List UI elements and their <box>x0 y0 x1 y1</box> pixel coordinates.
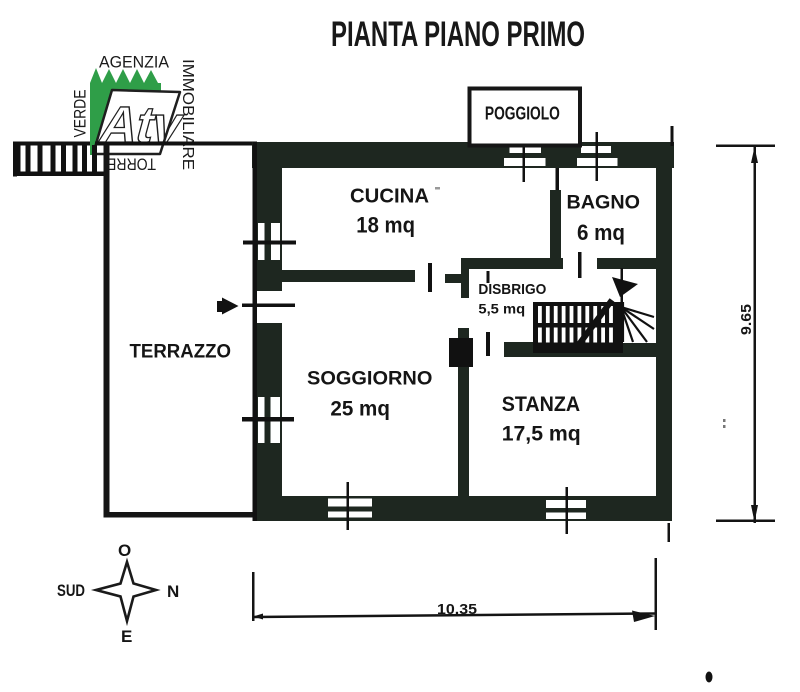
svg-text:SUD: SUD <box>57 581 85 600</box>
svg-text:O: O <box>118 541 131 560</box>
svg-text:5,5 mq: 5,5 mq <box>478 301 525 317</box>
svg-text:18 mq: 18 mq <box>356 213 415 238</box>
svg-text:17,5 mq: 17,5 mq <box>502 421 581 446</box>
svg-text:9.65: 9.65 <box>738 304 755 335</box>
svg-text:E: E <box>121 627 132 646</box>
svg-text:CUCINA: CUCINA <box>350 185 429 208</box>
svg-text:DISBRIGO: DISBRIGO <box>478 281 546 298</box>
svg-text:AGENZIA: AGENZIA <box>99 54 169 72</box>
svg-text:6 mq: 6 mq <box>577 220 625 245</box>
svg-text:POGGIOLO: POGGIOLO <box>485 102 560 123</box>
svg-text:25 mq: 25 mq <box>330 397 390 421</box>
svg-text:10.35: 10.35 <box>437 601 477 618</box>
svg-text:TORRE: TORRE <box>107 155 156 174</box>
svg-text:BAGNO: BAGNO <box>567 192 641 214</box>
svg-text:VERDE: VERDE <box>71 90 90 138</box>
svg-text:IMMOBILIARE: IMMOBILIARE <box>179 59 196 170</box>
svg-text:STANZA: STANZA <box>502 391 581 416</box>
svg-text:TERRAZZO: TERRAZZO <box>130 341 232 363</box>
svg-text:PIANTA PIANO PRIMO: PIANTA PIANO PRIMO <box>331 14 585 54</box>
svg-text:N: N <box>167 582 179 601</box>
svg-text:SOGGIORNO: SOGGIORNO <box>307 369 432 390</box>
